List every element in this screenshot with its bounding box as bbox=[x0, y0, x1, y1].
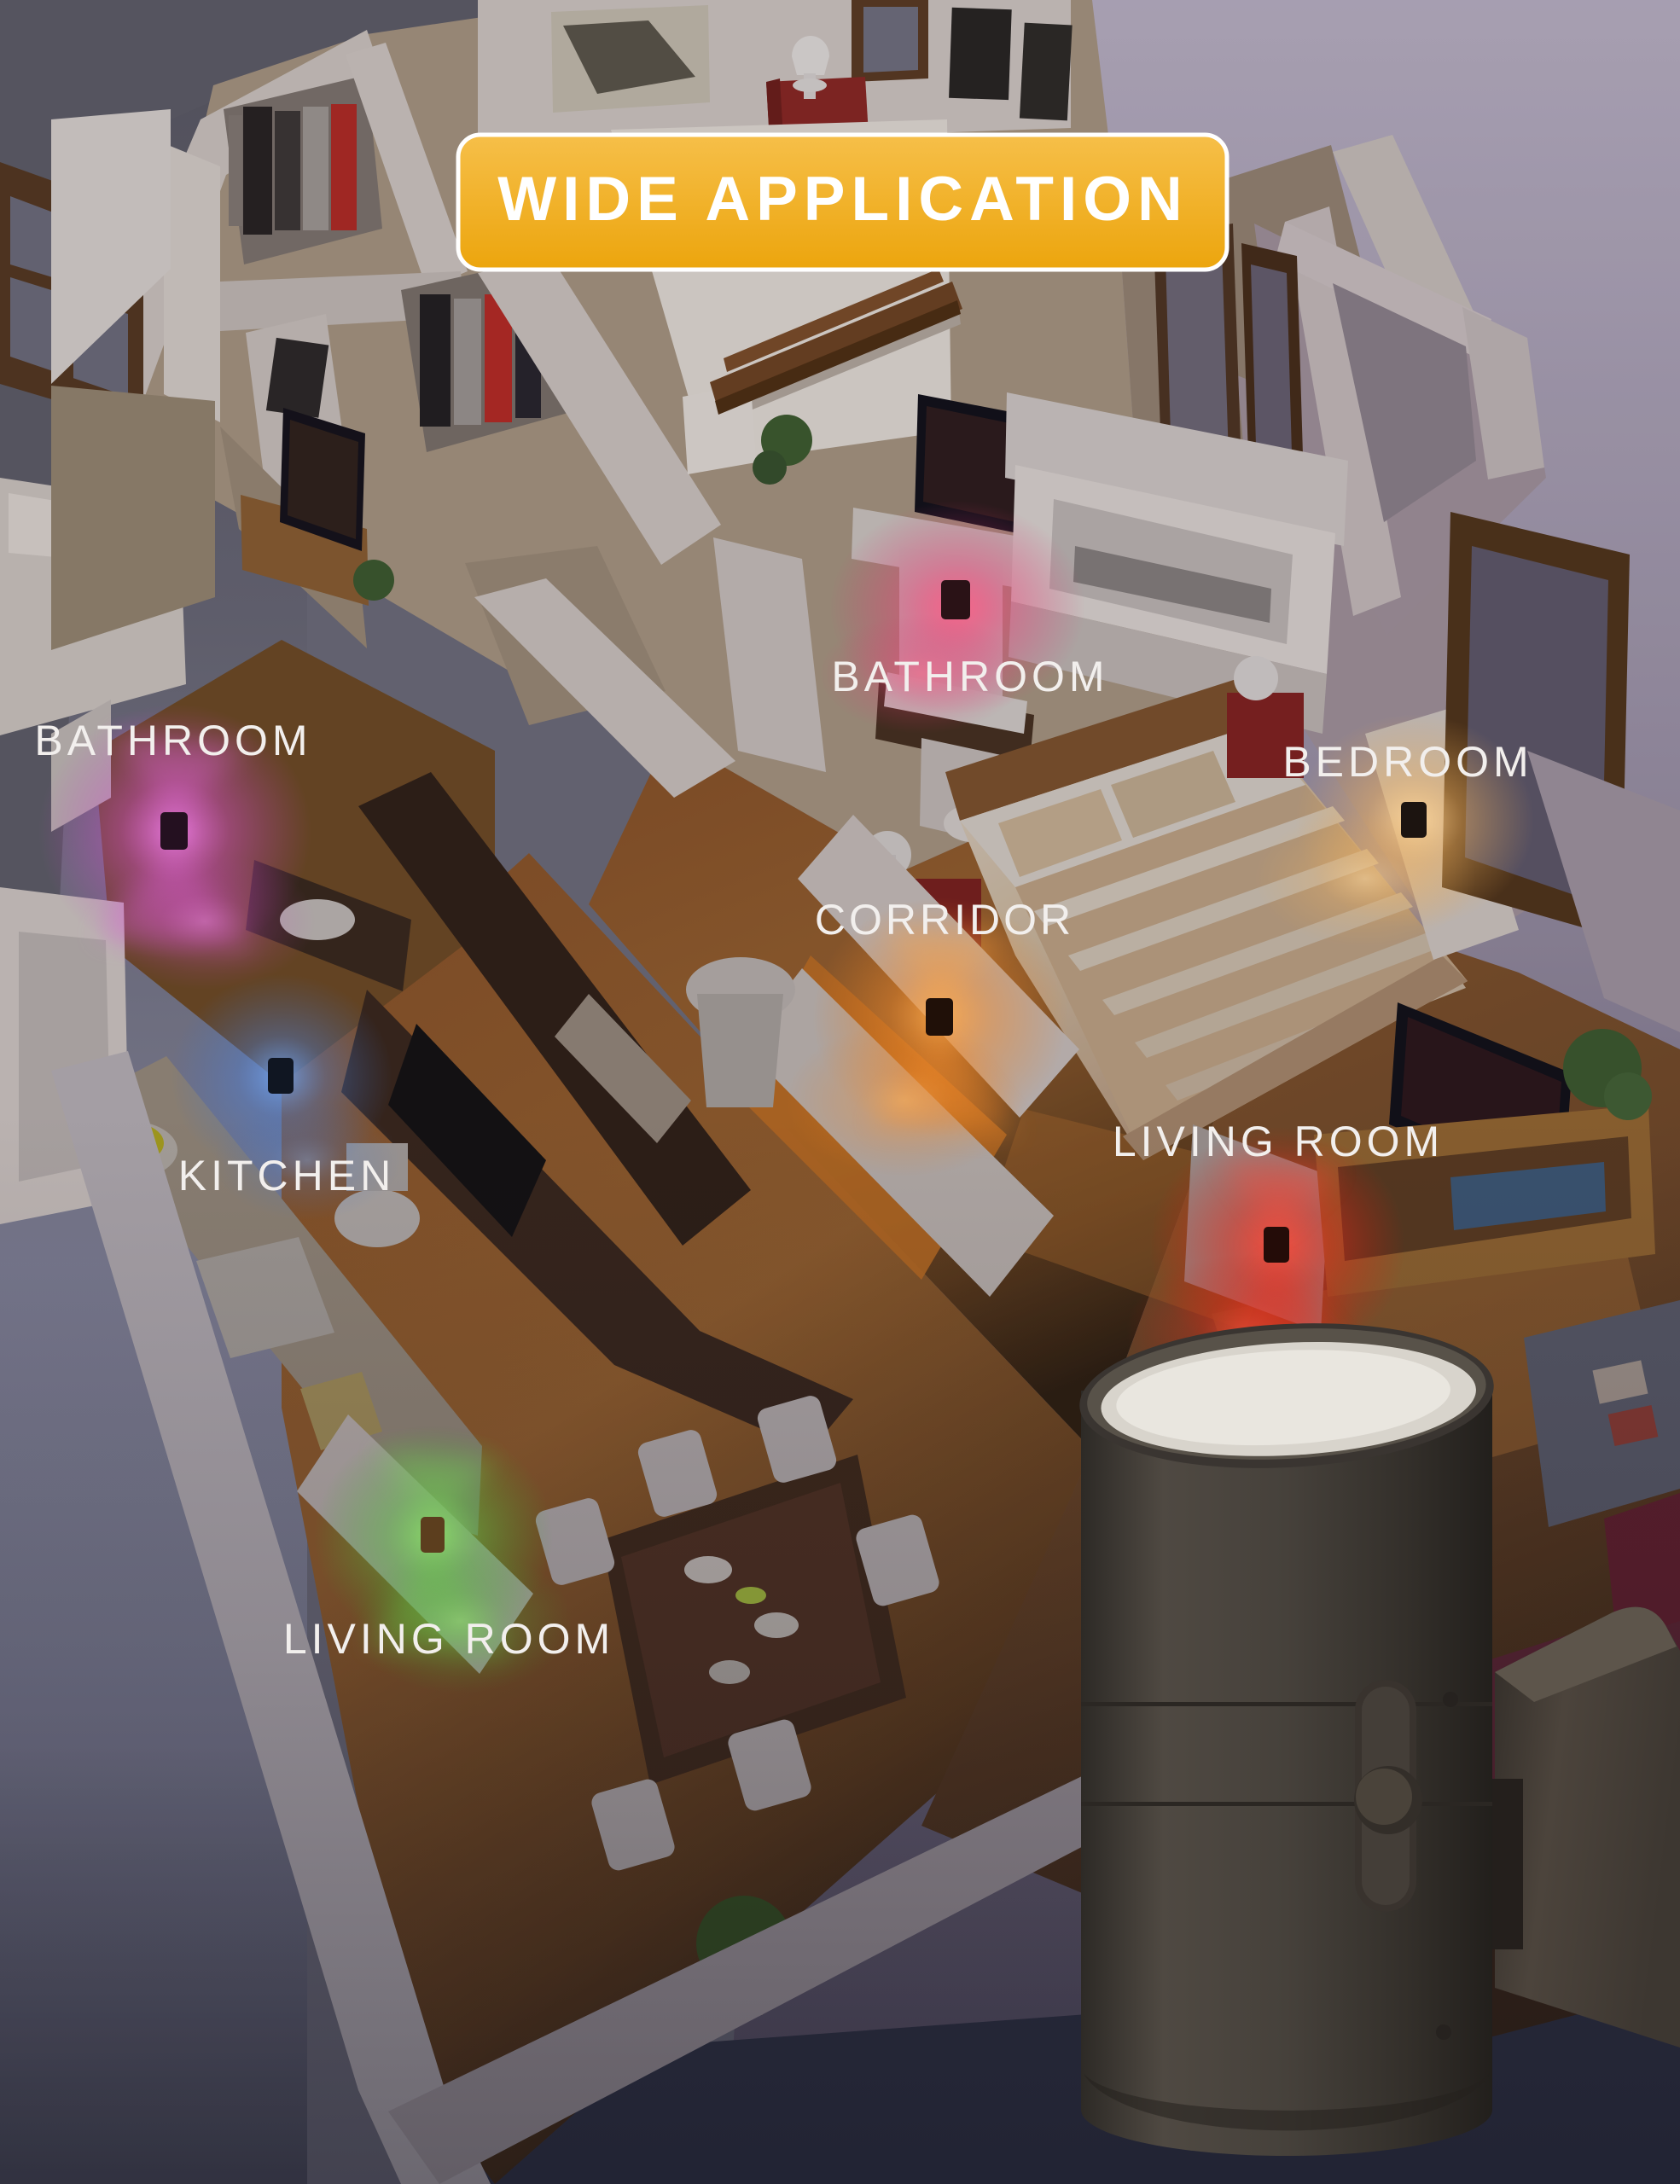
svg-text:KITCHEN: KITCHEN bbox=[178, 1152, 395, 1199]
svg-text:CORRIDOR: CORRIDOR bbox=[815, 896, 1074, 944]
svg-text:BATHROOM: BATHROOM bbox=[831, 653, 1108, 700]
svg-text:WIDE APPLICATION: WIDE APPLICATION bbox=[497, 165, 1189, 234]
svg-text:LIVING ROOM: LIVING ROOM bbox=[283, 1615, 614, 1663]
svg-text:LIVING ROOM: LIVING ROOM bbox=[1113, 1118, 1444, 1165]
svg-text:BEDROOM: BEDROOM bbox=[1282, 738, 1532, 786]
svg-text:BATHROOM: BATHROOM bbox=[34, 717, 311, 764]
